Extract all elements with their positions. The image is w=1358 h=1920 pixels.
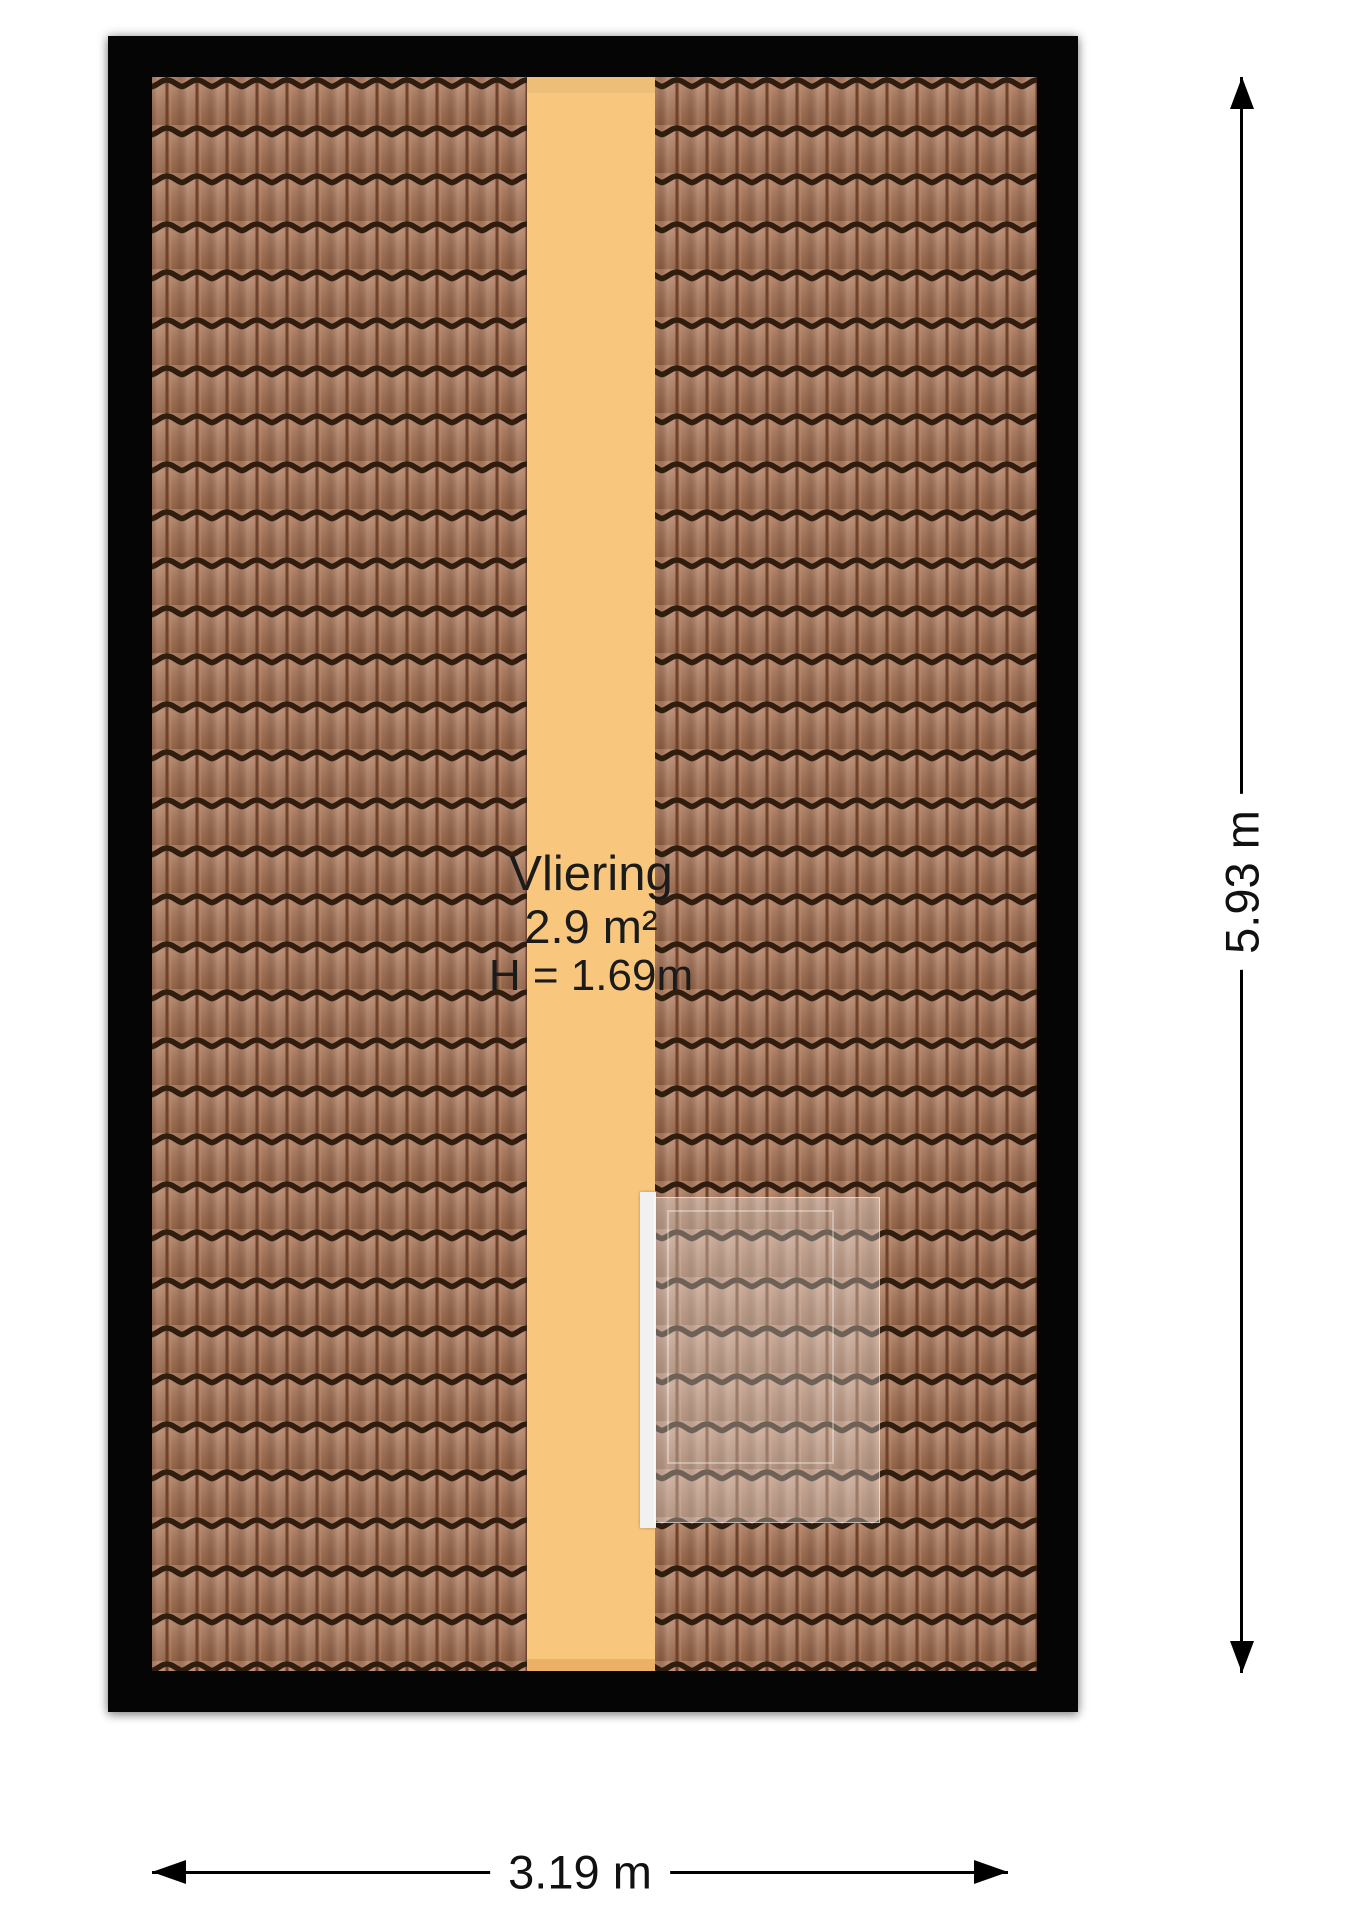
floorplan-canvas: Vliering 2.9 m² H = 1.69m 5.93 m 3.19 m	[0, 0, 1358, 1920]
horizontal-dimension-label: 3.19 m	[490, 1845, 670, 1900]
arrow-left-icon	[152, 1860, 186, 1884]
vertical-dimension-label: 5.93 m	[1211, 794, 1274, 970]
arrow-right-icon	[974, 1860, 1008, 1884]
skylight-window	[640, 1197, 880, 1523]
room-height-label: H = 1.69m	[391, 952, 791, 1000]
room-name-label: Vliering	[391, 846, 791, 902]
room-label: Vliering 2.9 m² H = 1.69m	[391, 846, 791, 1000]
arrow-down-icon	[1230, 1641, 1254, 1673]
arrow-up-icon	[1230, 77, 1254, 109]
room-area-label: 2.9 m²	[391, 902, 791, 952]
skylight-pane	[654, 1197, 880, 1523]
skylight-pane-inner	[667, 1210, 834, 1464]
